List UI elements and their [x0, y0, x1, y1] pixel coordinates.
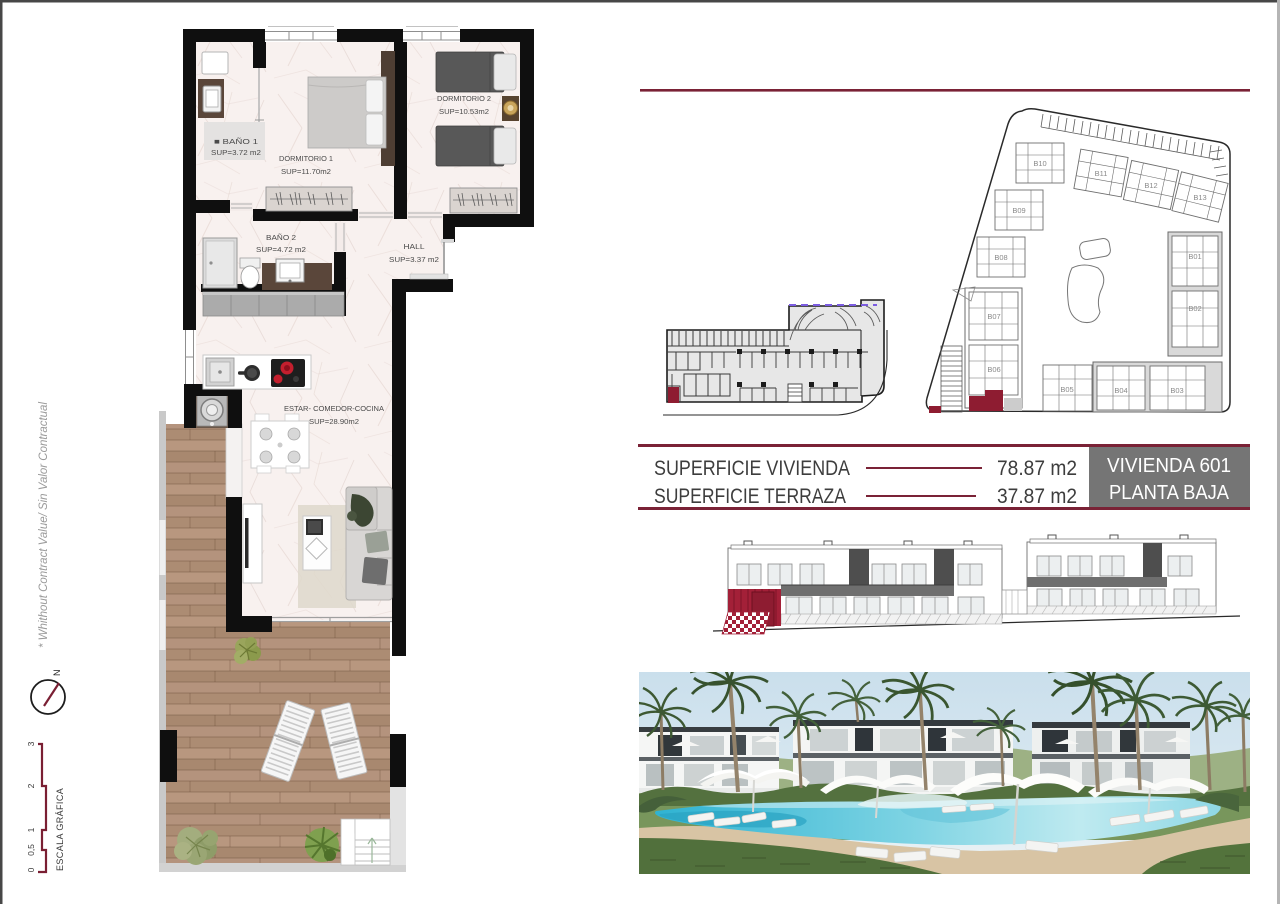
svg-text:SUP=28.90m2: SUP=28.90m2 — [309, 417, 359, 426]
svg-text:B09: B09 — [1012, 206, 1025, 215]
svg-text:B05: B05 — [1060, 385, 1073, 394]
svg-text:B02: B02 — [1188, 304, 1201, 313]
svg-text:BAÑO 2: BAÑO 2 — [266, 233, 296, 242]
svg-text:SUP=11.70m2: SUP=11.70m2 — [281, 167, 331, 176]
svg-text:SUP=3.37 m2: SUP=3.37 m2 — [389, 255, 439, 264]
svg-text:B10: B10 — [1033, 159, 1046, 168]
svg-text:ESCALA GRÁFICA: ESCALA GRÁFICA — [55, 788, 65, 871]
svg-text:VIVIENDA 601: VIVIENDA 601 — [1107, 455, 1231, 477]
svg-text:B13: B13 — [1193, 193, 1206, 202]
svg-text:B03: B03 — [1170, 386, 1183, 395]
svg-text:SUPERFICIE VIVIENDA: SUPERFICIE VIVIENDA — [654, 457, 850, 480]
svg-text:■ BAÑO 1: ■ BAÑO 1 — [214, 137, 258, 146]
svg-text:0,5: 0,5 — [26, 844, 36, 856]
svg-text:SUP=10.53m2: SUP=10.53m2 — [439, 107, 489, 116]
svg-text:B11: B11 — [1095, 169, 1108, 178]
svg-text:0: 0 — [26, 867, 36, 872]
svg-text:B08: B08 — [994, 253, 1007, 262]
svg-text:HALL: HALL — [404, 242, 425, 251]
svg-text:B07: B07 — [987, 312, 1000, 321]
svg-text:1: 1 — [26, 827, 36, 832]
svg-text:2: 2 — [26, 783, 36, 788]
svg-text:B04: B04 — [1114, 386, 1127, 395]
svg-text:DORMITORIO 1: DORMITORIO 1 — [279, 154, 333, 163]
svg-text:PLANTA BAJA: PLANTA BAJA — [1109, 482, 1230, 504]
svg-text:SUP=4.72 m2: SUP=4.72 m2 — [256, 245, 306, 254]
svg-text:B12: B12 — [1144, 181, 1157, 190]
svg-text:B01: B01 — [1188, 252, 1201, 261]
svg-text:* Whithout Contract Value/ Sin: * Whithout Contract Value/ Sin Valor Con… — [38, 402, 50, 648]
svg-text:B06: B06 — [987, 365, 1000, 374]
svg-text:78.87 m2: 78.87 m2 — [997, 457, 1077, 480]
svg-text:SUP=3.72 m2: SUP=3.72 m2 — [211, 148, 261, 157]
svg-text:N: N — [52, 670, 62, 677]
svg-text:37.87 m2: 37.87 m2 — [997, 485, 1077, 508]
svg-text:SUPERFICIE TERRAZA: SUPERFICIE TERRAZA — [654, 485, 846, 508]
svg-text:3: 3 — [26, 741, 36, 746]
svg-text:ESTAR- COMEDOR-COCINA: ESTAR- COMEDOR-COCINA — [284, 404, 385, 413]
svg-text:DORMITORIO 2: DORMITORIO 2 — [437, 94, 491, 103]
